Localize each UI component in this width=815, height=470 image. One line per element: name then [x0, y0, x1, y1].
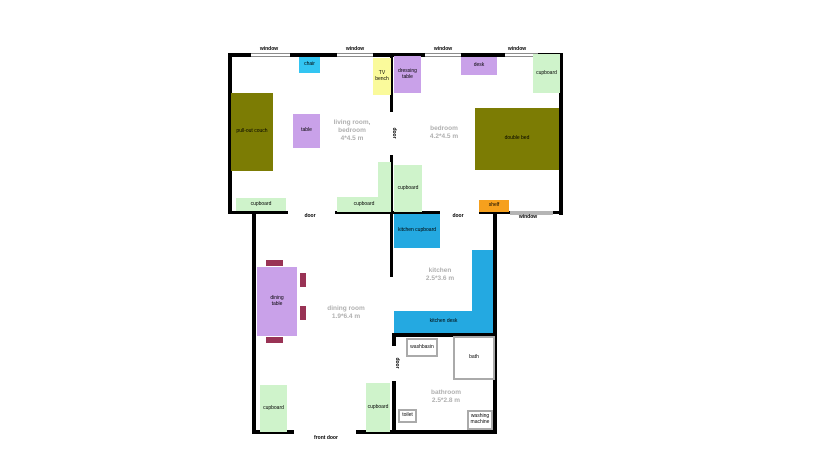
door-label-bedroom: door — [452, 213, 463, 219]
wall-mid-right-end — [553, 211, 563, 214]
double-bed[interactable]: double bed — [475, 108, 559, 170]
room-label-bedroom: bedroom 4.2*4.5 m — [430, 125, 458, 141]
door-label-bathroom: door — [394, 357, 400, 368]
door-label-divider: door — [391, 127, 397, 138]
room-label-line: living room, — [334, 119, 371, 127]
room-label-line: bathroom — [431, 389, 461, 397]
cupboard-bottom-mid[interactable]: cupboard — [366, 383, 390, 432]
room-label-living: living room, bedroom 4*4.5 m — [334, 119, 371, 143]
room-label-line: 2.5*3.6 m — [426, 275, 454, 283]
room-label-line: kitchen — [426, 267, 454, 275]
room-label-bathroom: bathroom 2.5*2.8 m — [431, 389, 461, 405]
room-label-line: bedroom — [430, 125, 458, 133]
bath[interactable]: bath — [453, 336, 495, 380]
room-label-kitchen: kitchen 2.5*3.6 m — [426, 267, 454, 283]
door-label-living: door — [304, 213, 315, 219]
washing-machine[interactable]: washing machine — [467, 410, 493, 430]
cupboard-bedroom[interactable]: cupboard — [394, 165, 422, 212]
window-3[interactable] — [425, 53, 461, 57]
room-label-line: 1.9*6.4 m — [327, 313, 365, 321]
window-2[interactable] — [337, 53, 373, 57]
front-door-label: front door — [314, 435, 338, 441]
desk[interactable]: desk — [461, 57, 497, 75]
wall-mid-left — [228, 211, 288, 214]
window-1[interactable] — [251, 53, 290, 57]
room-label-line: dining room — [327, 305, 365, 313]
wall-right-lower — [493, 214, 497, 434]
wall-kitchen-divider — [390, 214, 393, 277]
room-label-line: 4*4.5 m — [334, 135, 371, 143]
tv-bench[interactable]: TV bench — [373, 58, 391, 95]
kitchen-cupboard[interactable]: kitchen cupboard — [394, 214, 440, 248]
dining-chair-top[interactable] — [266, 260, 283, 266]
dining-table[interactable]: dining table — [257, 267, 297, 336]
kitchen-desk[interactable]: kitchen desk — [394, 311, 493, 333]
wall-left-lower — [252, 214, 256, 434]
room-label-dining: dining room 1.9*6.4 m — [327, 305, 365, 321]
window-label: window — [346, 46, 364, 52]
kitchen-desk-vertical[interactable] — [472, 250, 493, 311]
window-label: window — [519, 214, 537, 220]
dining-chair-right-2[interactable] — [300, 306, 306, 320]
cupboard-bedroom-corner[interactable]: cupboard — [533, 54, 560, 93]
dining-chair-bottom[interactable] — [266, 337, 283, 343]
washbasin[interactable]: washbasin — [406, 338, 438, 357]
pull-out-couch[interactable]: pull-out couch — [231, 93, 273, 171]
dressing-table[interactable]: dressing table — [394, 56, 421, 93]
room-label-line: 2.5*2.8 m — [431, 397, 461, 405]
cupboard-bottom-left[interactable]: cupboard — [260, 385, 287, 432]
floor-plan: chair TV bench dressing table desk cupbo… — [0, 0, 815, 470]
window-label: window — [508, 46, 526, 52]
wall-bathroom-left-lower — [392, 381, 396, 434]
dining-chair-right-1[interactable] — [300, 273, 306, 287]
window-label: window — [434, 46, 452, 52]
wall-bathroom-left-upper — [392, 337, 396, 346]
shelf[interactable]: shelf — [479, 200, 509, 212]
cupboard-l-vertical[interactable] — [378, 162, 391, 198]
cupboard-living[interactable]: cupboard — [236, 198, 286, 211]
cupboard-l-horizontal[interactable]: cupboard — [337, 197, 391, 212]
window-label: window — [260, 46, 278, 52]
toilet[interactable]: toilet — [398, 409, 417, 423]
chair[interactable]: chair — [299, 57, 320, 73]
room-label-line: bedroom — [334, 127, 371, 135]
table[interactable]: table — [293, 114, 320, 148]
room-label-line: 4.2*4.5 m — [430, 133, 458, 141]
